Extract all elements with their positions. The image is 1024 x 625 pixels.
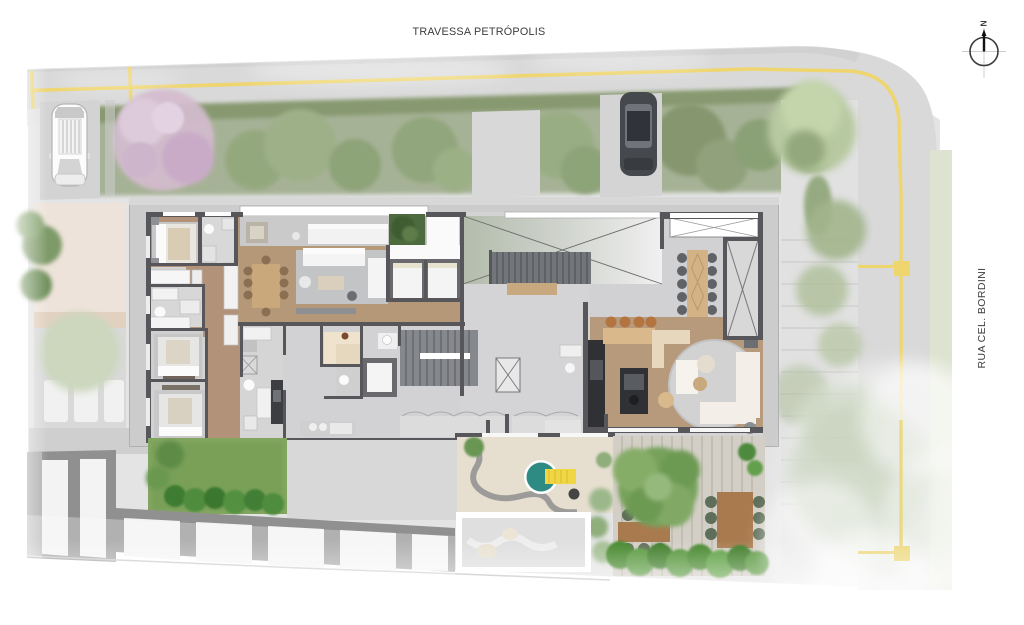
svg-text:N: N (979, 20, 989, 26)
svg-text:RUA CEL. BORDINI: RUA CEL. BORDINI (976, 268, 988, 369)
svg-text:TRAVESSA PETRÓPOLIS: TRAVESSA PETRÓPOLIS (413, 25, 546, 38)
